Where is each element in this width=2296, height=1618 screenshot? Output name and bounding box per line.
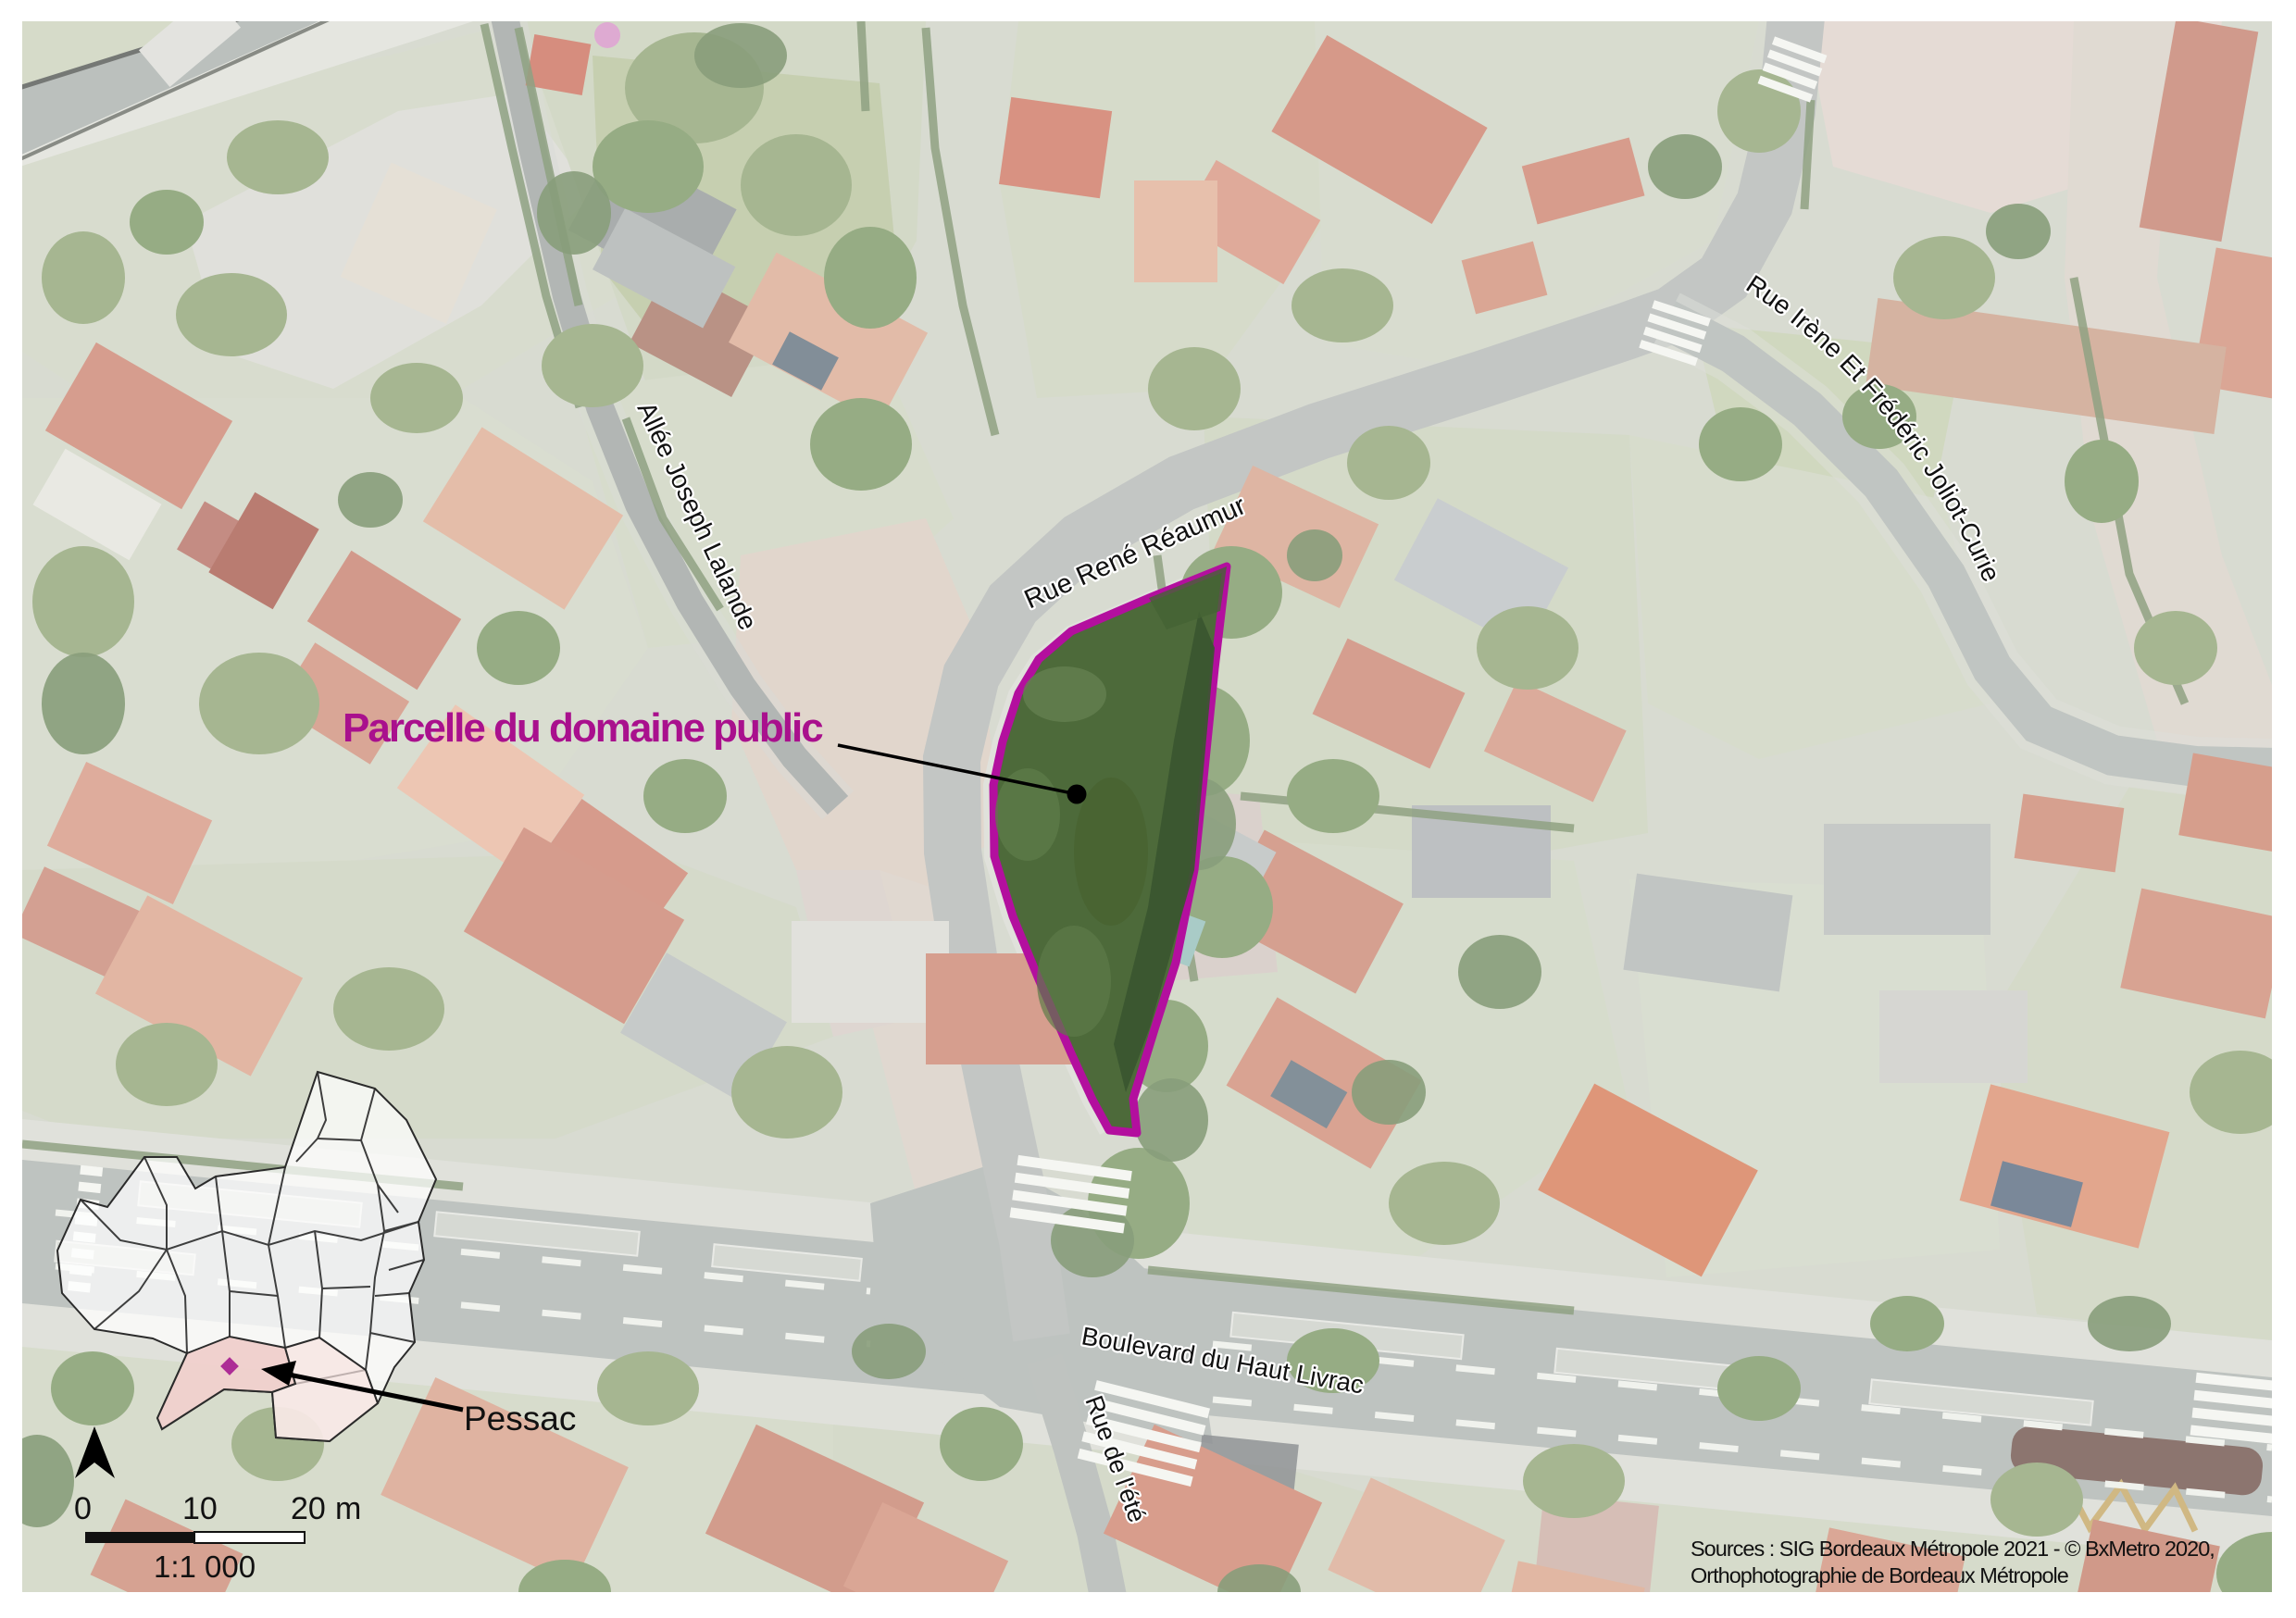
svg-text:Orthophotographie de Bordeaux: Orthophotographie de Bordeaux Métropole — [1691, 1563, 2069, 1587]
svg-text:Parcelle du domaine public: Parcelle du domaine public — [343, 705, 823, 751]
svg-text:10: 10 — [182, 1491, 218, 1526]
svg-text:Pessac: Pessac — [464, 1400, 576, 1438]
svg-text:0: 0 — [74, 1491, 92, 1526]
svg-text:20: 20 — [291, 1491, 326, 1526]
svg-text:1:1 000: 1:1 000 — [154, 1550, 256, 1584]
svg-text:m: m — [335, 1491, 361, 1526]
svg-text:Sources : SIG Bordeaux Métropo: Sources : SIG Bordeaux Métropole 2021 - … — [1691, 1537, 2215, 1561]
